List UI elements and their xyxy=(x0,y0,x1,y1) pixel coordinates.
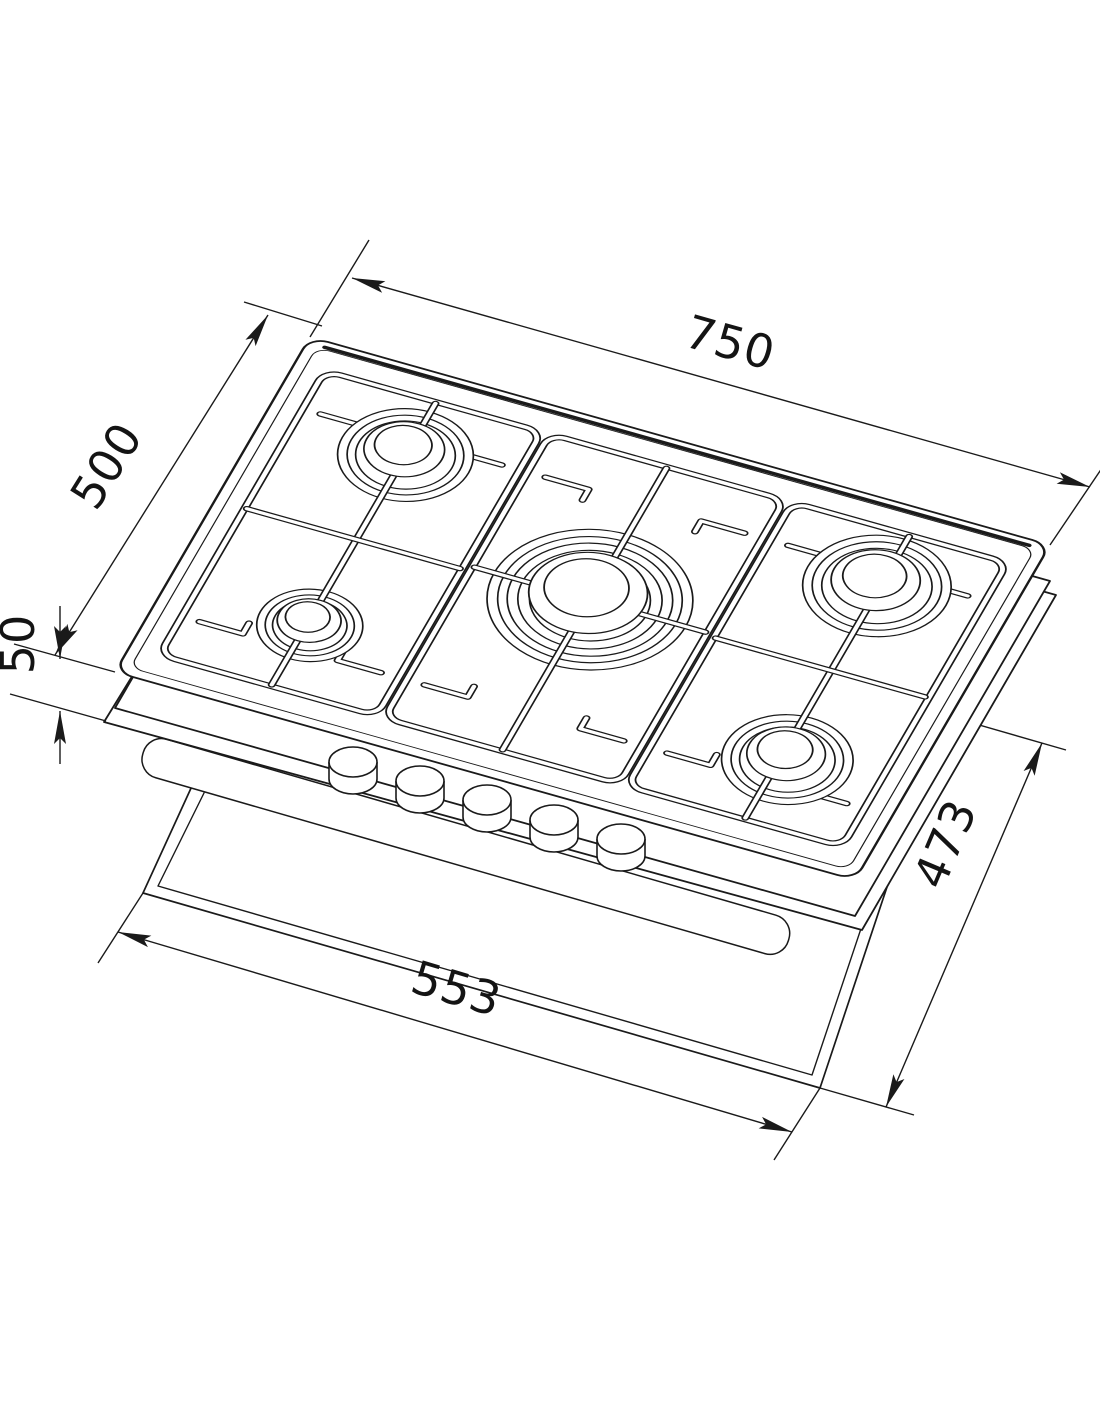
control-knob xyxy=(463,785,511,832)
control-knob xyxy=(597,824,645,871)
diagram-page: 553 473 xyxy=(0,0,1100,1422)
hob-dimension-diagram: 553 473 xyxy=(0,0,1100,1422)
depth-label: 500 xyxy=(59,413,153,519)
width-label: 750 xyxy=(679,304,781,381)
extension-line xyxy=(820,1088,914,1115)
cutout-width-label: 553 xyxy=(405,950,507,1028)
dimension-arrowhead xyxy=(116,926,151,947)
dimension-arrowhead xyxy=(350,272,385,293)
control-knob xyxy=(396,766,444,813)
extension-line xyxy=(1050,468,1100,545)
extension-line xyxy=(10,694,106,721)
control-knob xyxy=(329,747,377,794)
extension-line xyxy=(310,240,369,337)
dimension-arrowhead xyxy=(880,1074,904,1109)
extension-line xyxy=(244,302,322,326)
dimension-arrowhead xyxy=(245,312,273,346)
dimension-arrowhead xyxy=(1057,472,1092,493)
control-knob xyxy=(530,805,578,852)
height-label: 50 xyxy=(0,614,45,675)
dimension-arrowhead xyxy=(1024,741,1048,776)
extension-line xyxy=(774,1088,820,1160)
dimension-arrowhead xyxy=(759,1117,794,1138)
extension-line xyxy=(98,893,143,963)
